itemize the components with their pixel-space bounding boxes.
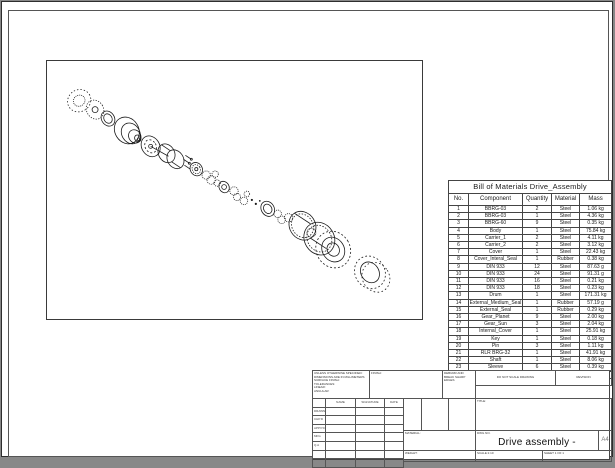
bom-row: 10DIN 93324Steel91.31 g bbox=[449, 270, 612, 277]
bom-row: 20Pin3Steel1.11 kg bbox=[449, 342, 612, 349]
material-field: MATERIAL: bbox=[403, 430, 476, 451]
bom-row: 6Carrier_22Steel3.12 kg bbox=[449, 242, 612, 249]
sheet-field: SHEET 1 OF 1 bbox=[542, 450, 612, 462]
approvals-row bbox=[313, 459, 404, 468]
drawing-sheet: Bill of Materials Drive_Assembly No. Com… bbox=[1, 1, 613, 457]
revision-field: REVISION bbox=[555, 370, 612, 386]
bom-row: 16Gear_Planet9Steel2.00 kg bbox=[449, 314, 612, 321]
bom-row: 21RLR BRG-321Steel41.91 kg bbox=[449, 350, 612, 357]
bom-row: 12DIN 93318Steel0.23 kg bbox=[449, 285, 612, 292]
hub-body-part bbox=[284, 206, 341, 261]
bom-body: 1BBRG-032Steel1.06 kg2BBRG-031Steel4.36 … bbox=[449, 206, 612, 386]
bom-title-row: Bill of Materials Drive_Assembly bbox=[449, 181, 612, 194]
sheet-size-field: A4 bbox=[598, 430, 612, 451]
sprocket-ring-part bbox=[348, 250, 395, 297]
sprocket-part bbox=[63, 85, 95, 116]
approvals-row: DRAWN bbox=[313, 407, 404, 416]
bom-row: 9DIN 93312Steel87.63 g bbox=[449, 263, 612, 270]
title-label: TITLE: bbox=[477, 399, 486, 403]
weight-label: WEIGHT: bbox=[405, 451, 418, 455]
bom-row: 2BBRG-031Steel4.36 kg bbox=[449, 213, 612, 220]
scale-field: SCALE:1:10 bbox=[475, 450, 543, 462]
sheet-size: A4 bbox=[601, 437, 608, 443]
approvals-row: MFG bbox=[313, 433, 404, 442]
bom-row: 11DIN 93316Steel0.21 kg bbox=[449, 278, 612, 285]
bom-row: 4Body1Steel75.84 kg bbox=[449, 227, 612, 234]
bom-row: 1BBRG-032Steel1.06 kg bbox=[449, 206, 612, 213]
bom-row: 17Gear_Sun3Steel2.04 kg bbox=[449, 321, 612, 328]
spare-cells bbox=[403, 398, 476, 431]
bom-col-quantity: Quantity bbox=[523, 194, 552, 206]
exploded-assembly-drawing bbox=[47, 61, 422, 319]
seal-ring-part bbox=[258, 199, 277, 219]
bom-col-mass: Mass bbox=[580, 194, 612, 206]
weight-field: WEIGHT: bbox=[403, 450, 476, 462]
bom-row: 13Drum1Steel171.31 kg bbox=[449, 292, 612, 299]
approvals-row: APPV'D bbox=[313, 424, 404, 433]
finish-label: FINISH: bbox=[371, 371, 382, 375]
bom-header-row: No. Component Quantity Material Mass bbox=[449, 194, 612, 206]
bom-row: 15External_Seal1Rubber0.29 kg bbox=[449, 306, 612, 313]
bom-col-material: Material bbox=[552, 194, 580, 206]
approvals-row: Q.A bbox=[313, 441, 404, 450]
bom-row: 8Cover_Interal_Seal1Rubber0.38 kg bbox=[449, 256, 612, 263]
bom-title: Bill of Materials Drive_Assembly bbox=[449, 181, 612, 194]
bom-row: 14External_Medium_Seal1Rubber57.19 g bbox=[449, 299, 612, 306]
planet-gear-cluster-3 bbox=[274, 210, 293, 223]
bill-of-materials-table: Bill of Materials Drive_Assembly No. Com… bbox=[448, 180, 612, 386]
approvals-row: CHK'D bbox=[313, 416, 404, 425]
tolerance-note: UNLESS OTHERWISE SPECIFIED: DIMENSIONS A… bbox=[312, 370, 370, 399]
finish-field: FINISH: bbox=[369, 370, 443, 399]
flange-part-2 bbox=[217, 179, 232, 194]
drawing-title: Drive assembly - exploded bbox=[477, 436, 597, 451]
exploded-view-box bbox=[46, 60, 423, 320]
deburr-note: DEBURR AND BREAK SHARP EDGES bbox=[442, 370, 476, 399]
approvals-row bbox=[313, 450, 404, 459]
bom-row: 18Internal_Cover1Steel25.91 kg bbox=[449, 328, 612, 335]
material-label: MATERIAL: bbox=[405, 431, 421, 435]
title-block: UNLESS OTHERWISE SPECIFIED: DIMENSIONS A… bbox=[312, 370, 610, 460]
dwg-no-label: DWG NO. bbox=[477, 431, 491, 435]
bom-col-no: No. bbox=[449, 194, 469, 206]
bom-row: 22Shaft1Steel8.06 kg bbox=[449, 357, 612, 364]
title-field: TITLE: bbox=[475, 398, 612, 431]
approvals-table: NAMESIGNATUREDATEDRAWNCHK'DAPPV'DMFGQ.A bbox=[312, 398, 404, 468]
planet-gear-cluster-1 bbox=[202, 171, 220, 186]
planet-gear-cluster-2 bbox=[230, 187, 261, 205]
dwg-no-field: DWG NO. Drive assembly - exploded bbox=[475, 430, 599, 451]
bom-row: 3BBRG-609Steel0.35 kg bbox=[449, 220, 612, 227]
bolt-pins-part bbox=[183, 155, 192, 169]
bom-row: 19Key1Steel0.18 kg bbox=[449, 335, 612, 342]
bom-row: 5Carrier_12Steel4.11 kg bbox=[449, 234, 612, 241]
do-not-scale-note: DO NOT SCALE DRAWING bbox=[475, 370, 556, 386]
approvals-header-row: NAMESIGNATUREDATE bbox=[313, 399, 404, 408]
bom-col-component: Component bbox=[469, 194, 523, 206]
bom-row: 7Cover1Steel22.43 kg bbox=[449, 249, 612, 256]
